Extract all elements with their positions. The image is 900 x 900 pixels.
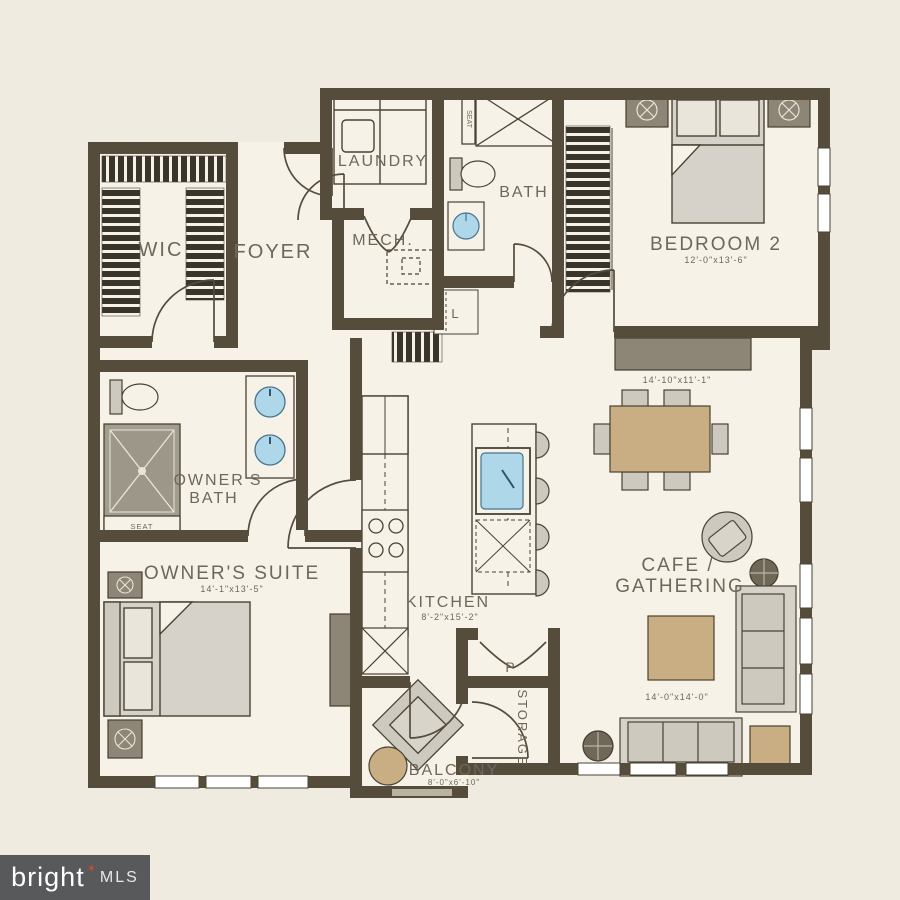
cafe-label-line2: GATHERING (615, 576, 745, 597)
pantry-label: P (505, 659, 514, 675)
kitchen-dims: 8'-2"x15'-2" (421, 612, 478, 622)
kitchen-base-cabinet (362, 628, 408, 674)
hall-bath-sink (448, 202, 484, 250)
bedroom2-dims: 12'-0"x13'-6" (684, 255, 747, 265)
plant (583, 731, 613, 761)
cafe-dims: 14'-0"x14'-0" (645, 692, 708, 702)
kitchen-cooktop (362, 510, 408, 572)
owners-nightstand-top (108, 572, 142, 598)
owners-bath-label-line2: BATH (189, 490, 238, 507)
owners-bed (104, 602, 250, 716)
owners-suite-label: OWNER'S SUITE (144, 563, 320, 584)
laundry-washer-dryer (334, 94, 426, 184)
owners-bath-label-line1: OWNER'S (173, 472, 262, 489)
balcony-dims: 8'-0"x6'-10" (428, 778, 480, 787)
floor-plan: SEAT (0, 0, 900, 900)
wic-label: WIC (139, 239, 184, 261)
cafe-label-line1: CAFE / (641, 555, 714, 576)
hall-bath-shower (462, 92, 560, 146)
storage-label: STORAGE (515, 689, 530, 766)
kitchen-island (472, 424, 536, 594)
bedroom2-bed (672, 95, 764, 223)
brightmls-brand-text: bright (11, 862, 85, 893)
star-icon: ✶ (87, 862, 96, 875)
balcony-round-table (369, 747, 407, 785)
bath-label: BATH (499, 184, 548, 201)
hall-shower-seat-label: SEAT (465, 110, 472, 128)
owners-nightstand-bottom (108, 720, 142, 758)
linen-label: L (451, 306, 458, 321)
ottoman (750, 726, 790, 766)
mech-label: MECH. (352, 232, 414, 249)
bedroom2-label: BEDROOM 2 (650, 234, 782, 255)
owners-bath-shower (104, 424, 180, 536)
dining-dims: 14'-10"x11'-1" (643, 375, 712, 385)
owners-bath-vanity (246, 376, 294, 478)
balcony-label: BALCONY (409, 762, 499, 779)
foyer-label: FOYER (234, 241, 313, 263)
dining-buffet (615, 338, 751, 370)
laundry-label: LAUNDRY (338, 153, 428, 170)
brightmls-suffix-text: MLS (100, 869, 139, 887)
sofa-vertical (736, 586, 796, 712)
brightmls-watermark: bright✶ MLS (0, 855, 150, 900)
coat-closet-shelving (392, 332, 442, 362)
round-side-table (750, 559, 778, 587)
owners-shower-seat-label: SEAT (130, 522, 153, 531)
owners-suite-dims: 14'-1"x13'-5" (200, 584, 263, 594)
bedroom2-closet (566, 126, 612, 292)
kitchen-label: KITCHEN (406, 594, 490, 611)
coffee-table (648, 616, 714, 680)
